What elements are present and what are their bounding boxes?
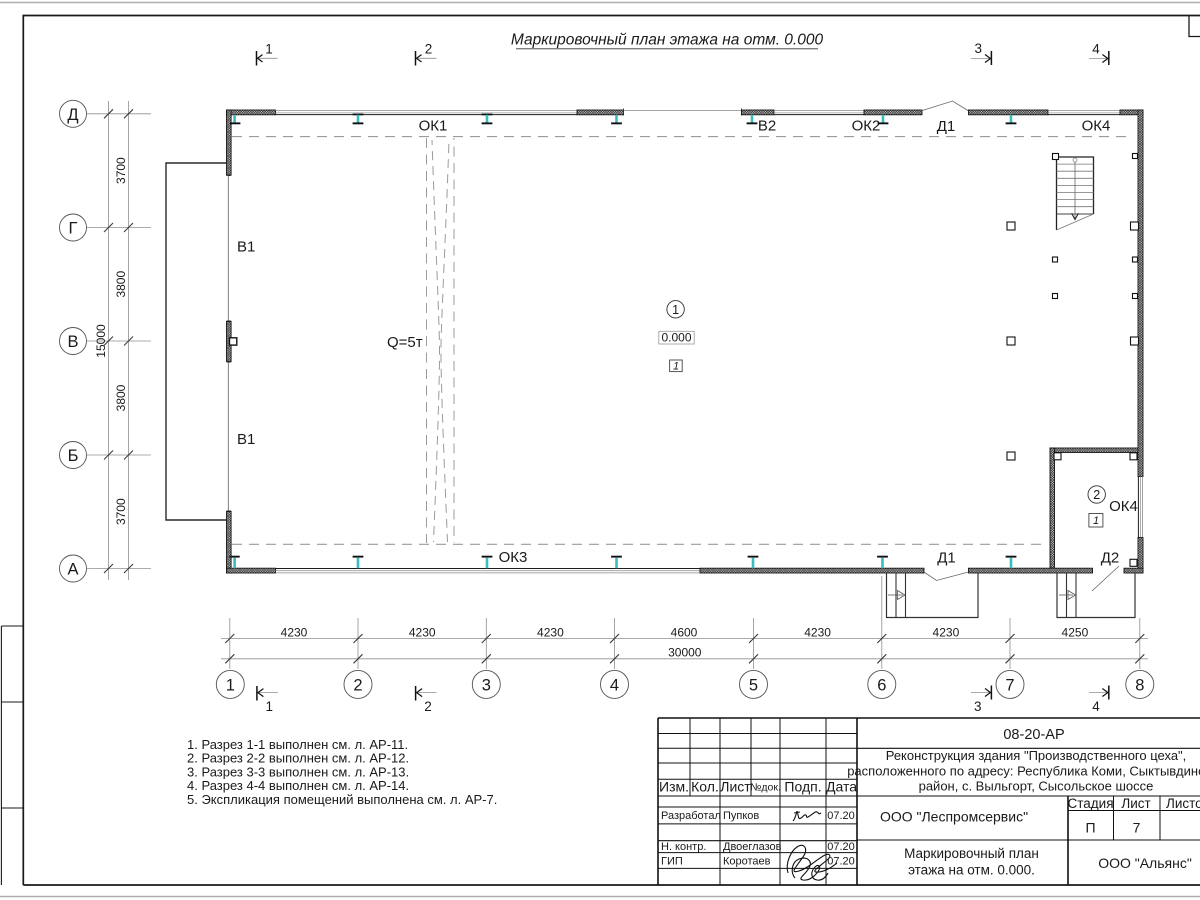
svg-text:ООО "Альянс": ООО "Альянс" [1098,855,1192,871]
svg-text:район, с. Выльгорт, Сысольское: район, с. Выльгорт, Сысольское шоссе [919,779,1154,794]
svg-text:2: 2 [424,699,432,714]
svg-text:1: 1 [265,42,273,57]
svg-text:4: 4 [1092,42,1100,57]
svg-text:4230: 4230 [537,625,564,639]
svg-text:2: 2 [425,42,433,57]
svg-text:ОК3: ОК3 [499,549,528,566]
svg-text:Двоеглазов: Двоеглазов [723,841,782,853]
svg-text:3800: 3800 [114,271,128,298]
svg-text:ОК1: ОК1 [419,118,448,135]
svg-text:Реконструкция здания "Производ: Реконструкция здания "Производственного … [886,748,1187,763]
svg-text:Разработал: Разработал [661,810,721,822]
svg-text:Дата: Дата [826,779,857,795]
svg-text:Д2: Д2 [1101,550,1120,567]
svg-text:1: 1 [226,677,235,695]
svg-text:2: 2 [353,677,362,695]
svg-text:3: 3 [482,677,491,695]
svg-text:Лист: Лист [1121,796,1150,811]
svg-text:Д1: Д1 [937,550,956,567]
svg-text:07.20: 07.20 [827,841,855,853]
svg-text:этажа на отм. 0.000.: этажа на отм. 0.000. [908,863,1035,878]
svg-text:4: 4 [610,677,619,695]
svg-text:4: 4 [1092,699,1100,714]
svg-text:Коротаев: Коротаев [723,856,771,868]
svg-text:ОК4: ОК4 [1082,118,1111,135]
svg-text:Маркировочный план: Маркировочный план [904,846,1039,861]
svg-text:15000: 15000 [94,324,108,358]
svg-text:Подп.: Подп. [784,779,821,795]
svg-text:4230: 4230 [409,625,436,639]
svg-text:П: П [1085,820,1095,836]
svg-text:Q=5т: Q=5т [387,334,423,351]
svg-text:В1: В1 [237,239,255,256]
svg-text:Б: Б [68,447,79,465]
svg-text:7: 7 [1133,820,1141,836]
svg-text:Стадия: Стадия [1067,796,1113,811]
svg-text:5: 5 [749,677,758,695]
svg-text:4230: 4230 [933,625,960,639]
svg-text:Лист: Лист [720,779,751,795]
svg-text:4600: 4600 [671,625,698,639]
svg-text:1: 1 [672,303,679,317]
svg-text:расположенного по адресу: Респ: расположенного по адресу: Республика Ком… [847,763,1200,778]
svg-text:ООО "Леспромсервис": ООО "Леспромсервис" [880,809,1028,825]
svg-text:3: 3 [974,41,982,56]
svg-text:3: 3 [974,699,982,714]
svg-text:А: А [67,561,78,579]
svg-text:1: 1 [1093,515,1099,527]
svg-text:08-20-АР: 08-20-АР [1003,727,1064,743]
svg-text:6: 6 [877,677,886,695]
svg-text:В1: В1 [237,431,255,448]
svg-text:2: 2 [1093,488,1100,502]
svg-text:1: 1 [673,361,679,373]
svg-text:07.20: 07.20 [827,810,855,822]
svg-text:ГИП: ГИП [661,856,683,868]
svg-text:3700: 3700 [114,157,128,184]
svg-text:30000: 30000 [668,646,702,660]
svg-text:ОК2: ОК2 [852,118,881,135]
svg-text:4250: 4250 [1062,625,1089,639]
svg-text:Д: Д [67,106,78,124]
svg-text:8: 8 [1135,677,1144,695]
svg-text:Изм.: Изм. [659,779,689,795]
svg-text:Пупков: Пупков [723,810,759,822]
svg-text:Д1: Д1 [937,118,956,135]
svg-text:Кол.: Кол. [691,779,719,795]
svg-text:3700: 3700 [114,498,128,525]
svg-text:7: 7 [1005,677,1014,695]
svg-text:№док.: №док. [750,782,781,794]
svg-text:3800: 3800 [114,384,128,411]
svg-text:Н. контр.: Н. контр. [661,841,706,853]
svg-text:5. Экспликация помещений выпол: 5. Экспликация помещений выполнена см. л… [187,792,497,807]
svg-text:ОК4: ОК4 [1109,498,1138,515]
svg-text:Маркировочный план этажа на от: Маркировочный план этажа на отм. 0.000 [511,32,824,49]
svg-text:В: В [67,333,78,351]
svg-text:1: 1 [266,699,274,714]
svg-text:4230: 4230 [281,625,308,639]
svg-text:Листов: Листов [1166,796,1200,811]
svg-text:0.000: 0.000 [661,330,691,344]
svg-text:4230: 4230 [804,625,831,639]
svg-text:В2: В2 [758,118,776,135]
svg-text:Г: Г [69,220,78,238]
svg-text:07.20: 07.20 [827,856,855,868]
